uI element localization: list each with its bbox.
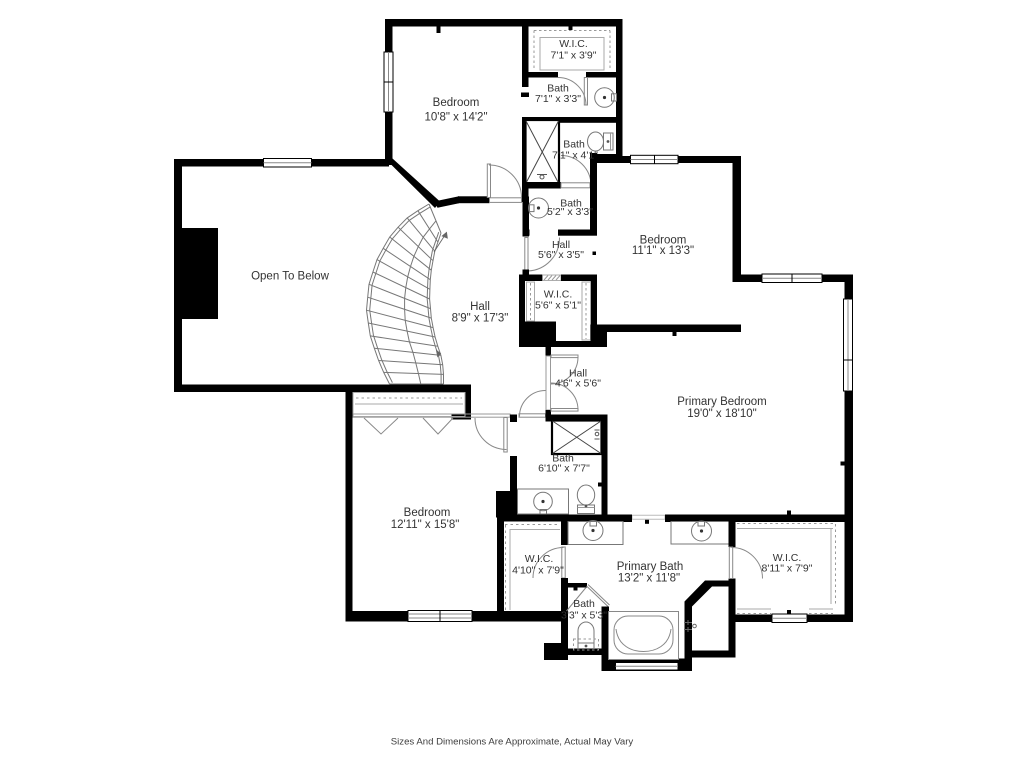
svg-text:19'0" x 18'10": 19'0" x 18'10": [687, 408, 756, 420]
svg-text:6'10" x 7'7": 6'10" x 7'7": [538, 463, 590, 475]
svg-text:Sizes And Dimensions Are Appro: Sizes And Dimensions Are Approximate, Ac…: [391, 737, 634, 748]
svg-text:Primary Bath: Primary Bath: [617, 561, 683, 573]
svg-text:Primary Bedroom: Primary Bedroom: [677, 396, 766, 408]
svg-text:7'1" x 4'1": 7'1" x 4'1": [552, 150, 598, 162]
svg-text:8'11" x 7'9": 8'11" x 7'9": [762, 563, 813, 575]
svg-text:7'1" x 3'9": 7'1" x 3'9": [551, 50, 597, 62]
svg-text:5'6" x 5'1": 5'6" x 5'1": [535, 300, 581, 312]
svg-text:5'2" x 3'3": 5'2" x 3'3": [547, 206, 593, 218]
svg-text:W.I.C.: W.I.C.: [559, 38, 588, 50]
svg-text:5'6" x 3'5": 5'6" x 3'5": [538, 249, 584, 261]
svg-text:13'2" x 11'8": 13'2" x 11'8": [618, 573, 680, 585]
svg-text:Bedroom: Bedroom: [433, 97, 480, 109]
svg-text:Hall: Hall: [470, 301, 490, 313]
svg-text:10'8" x 14'2": 10'8" x 14'2": [424, 112, 487, 124]
svg-text:11'1" x 13'3": 11'1" x 13'3": [632, 245, 694, 257]
svg-text:Bedroom: Bedroom: [404, 507, 451, 519]
svg-text:12'11" x 15'8": 12'11" x 15'8": [391, 519, 460, 531]
svg-text:8'9" x 17'3": 8'9" x 17'3": [452, 313, 509, 325]
svg-text:7'1" x 3'3": 7'1" x 3'3": [535, 93, 581, 105]
svg-text:4'6" x 5'6": 4'6" x 5'6": [555, 378, 601, 390]
svg-text:W.I.C.: W.I.C.: [525, 553, 554, 565]
svg-text:Bath: Bath: [573, 598, 595, 610]
svg-text:4'10" x 7'9": 4'10" x 7'9": [512, 565, 564, 577]
svg-text:3'3" x 5'3": 3'3" x 5'3": [561, 610, 607, 622]
svg-text:Open To Below: Open To Below: [251, 271, 329, 283]
